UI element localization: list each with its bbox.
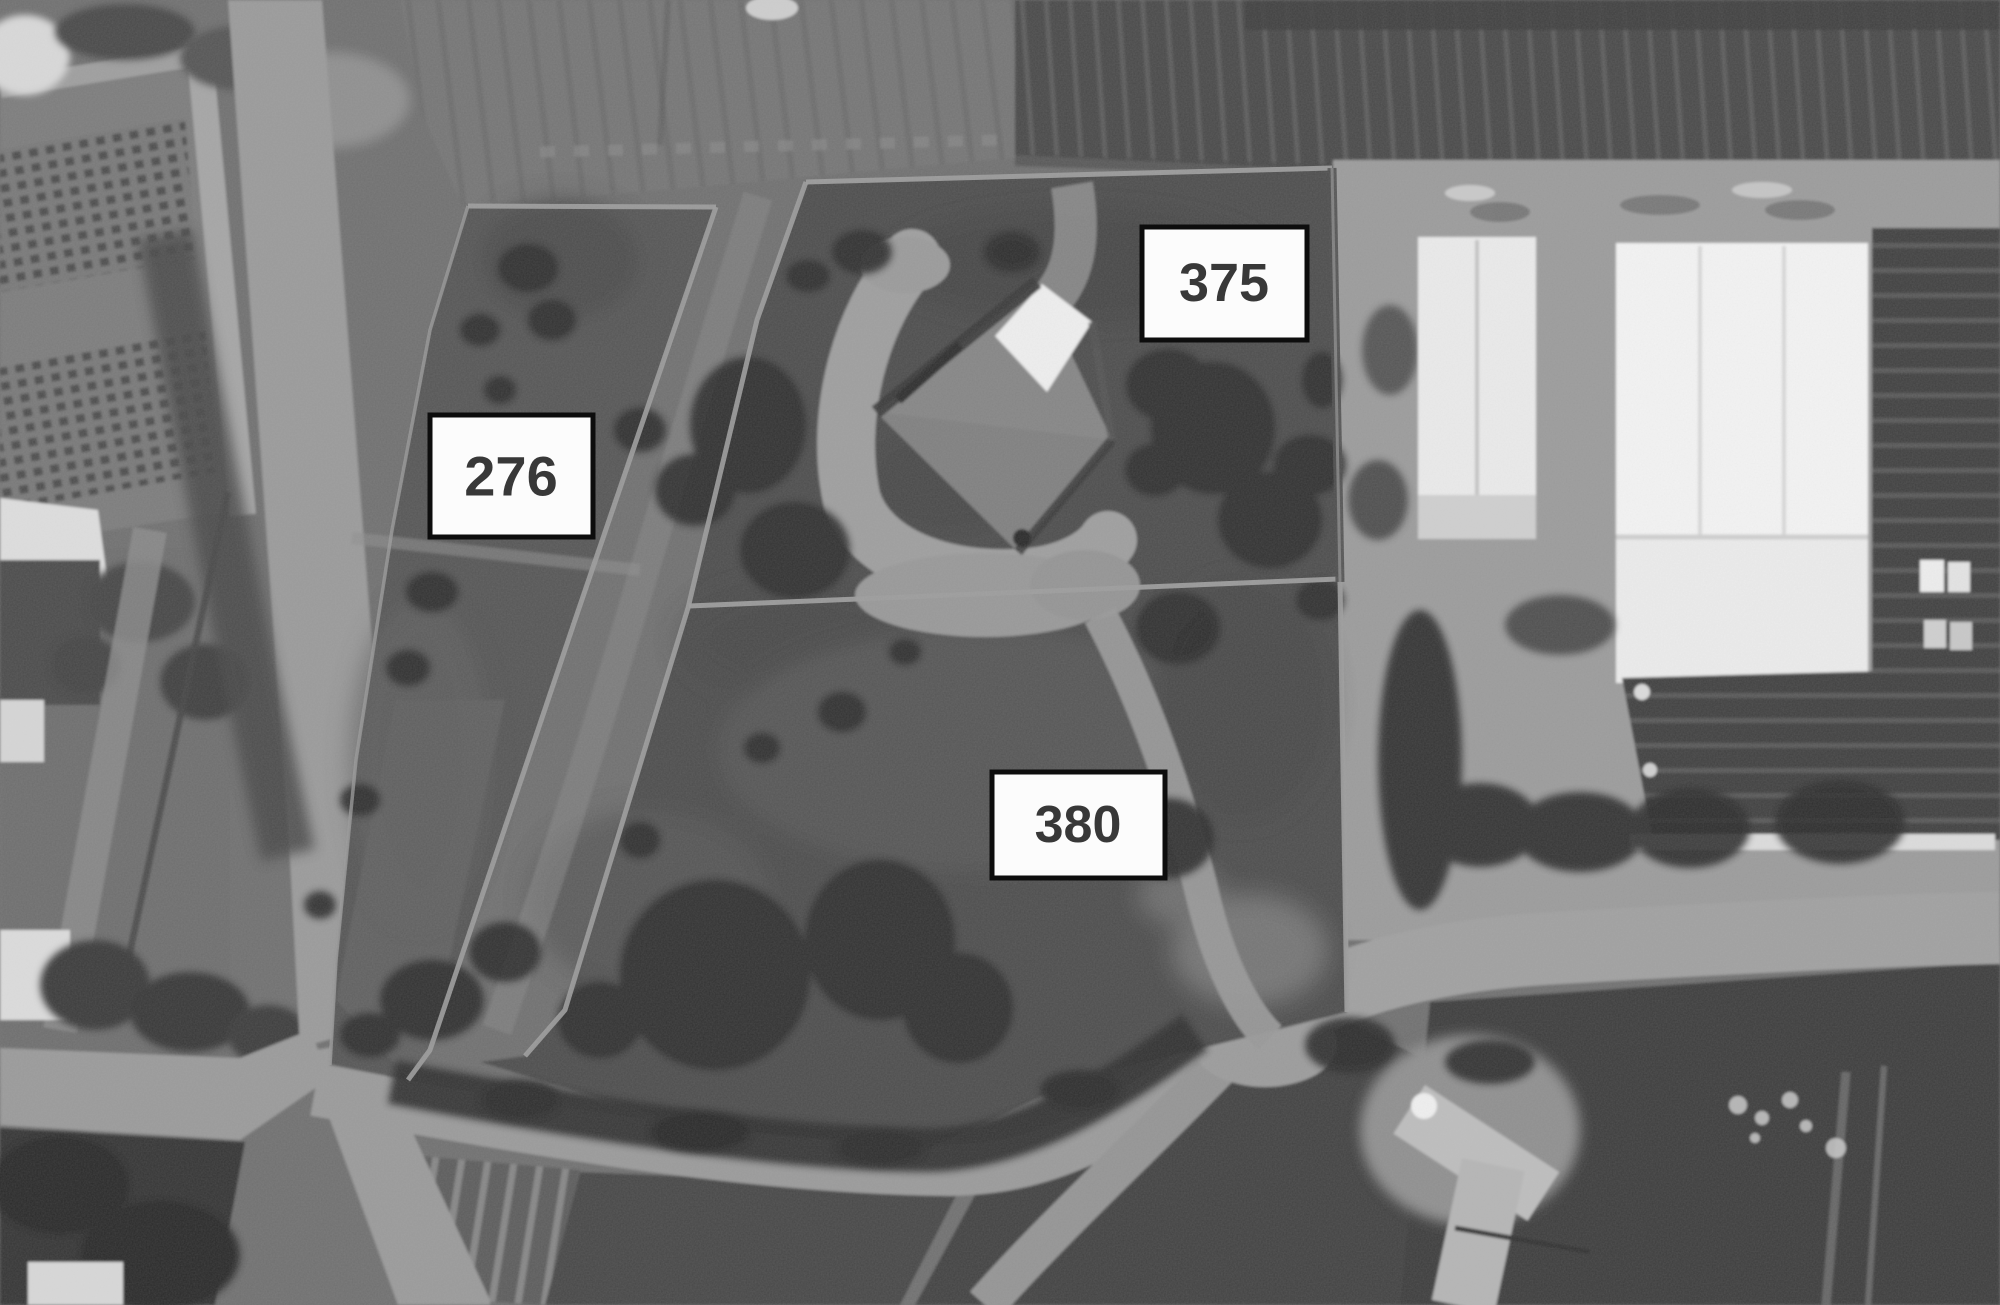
parcel-label-276[interactable]: 276 [430, 415, 593, 537]
aerial-orthophoto: 276 375 380 [0, 0, 2000, 1305]
parcel-label-375-text: 375 [1179, 253, 1269, 313]
film-grain-overlay [0, 0, 2000, 1305]
parcel-label-380-text: 380 [1035, 796, 1122, 854]
parcel-label-380[interactable]: 380 [992, 772, 1165, 878]
parcel-label-375[interactable]: 375 [1142, 227, 1307, 340]
aerial-map-stage: 276 375 380 [0, 0, 2000, 1305]
parcel-label-276-text: 276 [464, 445, 557, 508]
